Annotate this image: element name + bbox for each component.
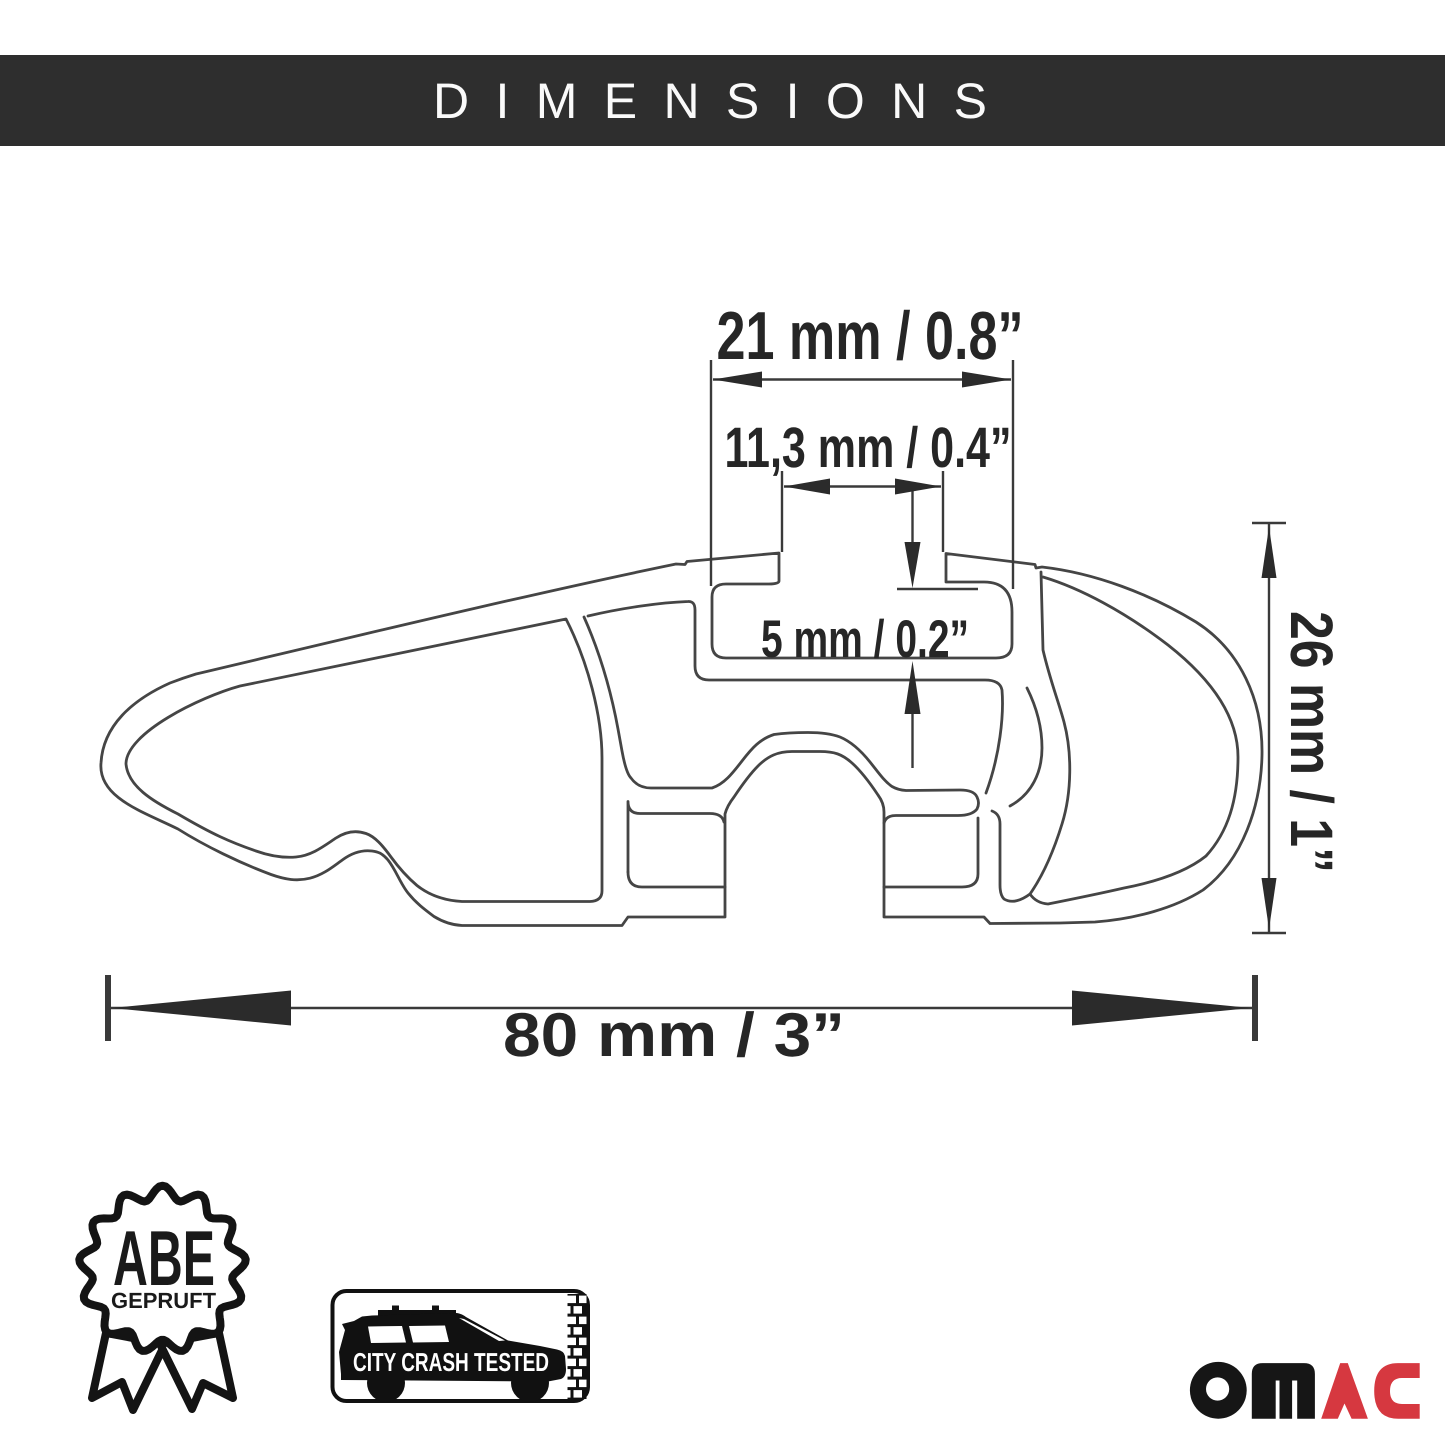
svg-text:80 mm / 3”: 80 mm / 3” (503, 1001, 845, 1070)
svg-text:21 mm / 0.8”: 21 mm / 0.8” (717, 298, 1024, 374)
svg-text:26 mm / 1”: 26 mm / 1” (1278, 611, 1345, 873)
svg-text:11,3 mm / 0.4”: 11,3 mm / 0.4” (725, 416, 1012, 480)
svg-text:DIMENSIONS: DIMENSIONS (433, 73, 1013, 129)
svg-text:5 mm / 0.2”: 5 mm / 0.2” (761, 610, 969, 669)
svg-text:CITY CRASH TESTED: CITY CRASH TESTED (353, 1347, 549, 1377)
svg-text:GEPRUFT: GEPRUFT (111, 1288, 217, 1313)
